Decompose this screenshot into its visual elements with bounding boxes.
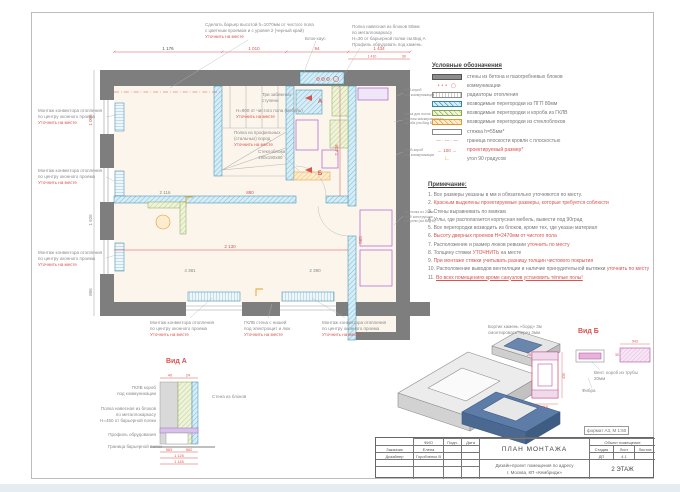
view-b-note-2: Вент. короб из трубы20мм: [594, 370, 638, 382]
annotation-shelf-profile: Полка из профильных(стальных) пород Уточ…: [234, 130, 281, 148]
tb-object-label: Объект помещение: [589, 438, 655, 445]
note-row: 10. Расположение выводов вентиляции и на…: [428, 265, 663, 273]
note-row: 5. Все перегородки возводить из блоков, …: [428, 224, 663, 232]
note-text: Все размеры указаны в мм и обязательно у…: [434, 192, 582, 198]
note-text: Все перегородки возводить из блоков, кро…: [434, 225, 598, 231]
legend-item: возводимые перегородки из стеклоблоков: [432, 119, 647, 126]
view-a-note-5: Стена из блоков: [212, 394, 246, 400]
note-number: 3: [428, 209, 431, 215]
tb-sheet-label: Лист: [613, 445, 634, 452]
view-a-note-2: Полка навесная из блоковпо металлокаркас…: [98, 406, 156, 424]
legend-item-label: радиаторы отопления: [467, 92, 518, 98]
legend-item-label: возводимые перегородки из ПГП 80мм: [467, 101, 557, 107]
tb-stage-value: ДП: [589, 452, 613, 459]
title-block: ФИО Подп. Дата Заказчик Елена Дизайнер Г…: [375, 437, 654, 478]
svg-text:1 010: 1 010: [248, 46, 260, 51]
annotation-shelf-top: Полка навесная из блоков 50мм по металло…: [352, 24, 426, 47]
note-text-red: уточнить по месту: [607, 266, 649, 272]
svg-text:2 116: 2 116: [160, 190, 171, 195]
drawing-sheet: А Б 1 176 1 010 94 1 434 1 410 30 1 006 …: [0, 0, 680, 492]
project-line-1: Дизайн-проект помещения по адресу: [495, 463, 573, 468]
section-marker-a: А: [318, 99, 323, 105]
note-row: 3. Стены выравнивать по маякам: [428, 208, 663, 216]
tb-col-fio: ФИО: [413, 438, 443, 445]
svg-text:1 176: 1 176: [162, 46, 174, 51]
annotation-glass-blocks: Стеклоблоки190х190х80: [258, 149, 285, 161]
view-a-detail: 563 562 1 125 1 145 40 24: [150, 374, 215, 465]
annotation-convector-1: Монтаж конвектора отопленияпо центру око…: [38, 108, 102, 126]
annotation-duct-1: ПГП-коробпод коммуникации: [404, 88, 434, 97]
note-text: Толщину стяжки: [434, 250, 473, 256]
note-text-red: Красным выделены проектируемые размеры, …: [434, 200, 609, 206]
annotation-convector-3: Монтаж конвектора отопленияпо центру око…: [38, 250, 102, 268]
note-number: 4: [428, 217, 431, 223]
note-number: 9: [428, 258, 431, 264]
tb-role-1: Заказчик: [376, 445, 413, 452]
note-text-post: на месте: [499, 250, 521, 256]
note-row: 6. Высоту дверных проемов Н=2470мм от чи…: [428, 232, 663, 240]
svg-text:25: 25: [527, 353, 531, 357]
section-marker-b: Б: [318, 171, 323, 177]
legend: Условные обозначения стены из бетона и п…: [432, 63, 647, 165]
tb-empty-1: [376, 459, 413, 466]
svg-text:563: 563: [166, 448, 172, 452]
note-row: 4. Углы, где располагается корпусная меб…: [428, 216, 663, 224]
view-b-note-1: Бортик камень «борд» 3мсмонтировать чере…: [488, 324, 542, 336]
legend-swatch-icon: ∘∘∘ ◯: [432, 83, 462, 89]
note-text-red: УТОЧНИТЬ: [473, 250, 500, 256]
legend-item-label: стены из бетона и пазогребневых блоков: [467, 74, 563, 80]
annotation-furniture-height: Н=900 от чистого пола (мебель) Уточнить …: [236, 108, 303, 120]
legend-swatch-icon: [432, 119, 462, 125]
project-line-2: г. Москва, КП «Кембридж»: [507, 470, 562, 475]
note-row: 7. Расположение и размер люков ревизии у…: [428, 241, 663, 249]
legend-item-label: граница плоскости кровли с плоскостью: [467, 138, 560, 144]
legend-item: возводимые перегородки из ПГП 80мм: [432, 101, 647, 108]
svg-text:430: 430: [562, 373, 566, 379]
legend-item: ∘∘∘ ◯ коммуникации: [432, 82, 647, 89]
svg-text:94: 94: [314, 46, 320, 51]
note-row: 2. Красным выделены проектируемые размер…: [428, 199, 663, 207]
legend-item: ← 100 → проектируемый размер*: [432, 147, 647, 154]
tb-role-2: Дизайнер: [376, 452, 413, 459]
note-number: 11: [428, 275, 433, 281]
legend-item: возводимые перегородки и короба из ГКЛВ: [432, 110, 647, 117]
note-number: 8: [428, 250, 431, 256]
note-text: Расположение и размер люков ревизии: [434, 242, 528, 248]
note-text-red: При монтаже стяжки учитывать разницу тол…: [434, 258, 594, 264]
tb-doc-title-cell: ПЛАН МОНТАЖА: [479, 438, 589, 459]
notes: Примечание: 1. Все размеры указаны в мм …: [428, 182, 663, 282]
svg-text:24: 24: [186, 374, 190, 378]
svg-text:2 130: 2 130: [224, 244, 236, 249]
legend-swatch-icon: [432, 101, 462, 107]
note-text-red: Во всех помещениях кроме санузлов устано…: [436, 275, 583, 281]
tb-col-sign: Подп.: [443, 438, 461, 445]
annotation-barrier: Сделать барьер высотой h=1070мм от чисто…: [205, 22, 314, 40]
legend-item: стяжка h=55мм*: [432, 128, 647, 135]
note-number: 2: [428, 200, 431, 206]
svg-text:543: 543: [632, 340, 638, 344]
annotation-convector-5: Монтаж конвектора отопленияпо центру око…: [322, 320, 386, 338]
svg-text:880: 880: [246, 190, 254, 195]
tb-empty-5: [376, 466, 413, 479]
note-number: 6: [428, 233, 431, 239]
legend-swatch-icon: ∟: [432, 156, 462, 162]
svg-text:1 410: 1 410: [368, 55, 377, 59]
tb-empty-3: [443, 459, 461, 466]
legend-item: радиаторы отопления: [432, 91, 647, 98]
annotation-convector-4: Монтаж конвектора отопленияпо центру око…: [150, 320, 214, 338]
tb-name-1: Елена: [413, 445, 443, 452]
svg-text:1 926: 1 926: [88, 214, 93, 226]
format-scale-label: формат А3, М 1:50: [584, 426, 629, 435]
legend-item-label: коммуникации: [467, 83, 501, 89]
tb-sheet-value: 4.1: [613, 452, 634, 459]
doc-title: ПЛАН МОНТАЖА: [502, 446, 567, 453]
note-text: Расположение выводов вентиляции и наличи…: [436, 266, 606, 272]
tb-date-2: [461, 452, 479, 459]
svg-text:1 145: 1 145: [174, 460, 184, 464]
svg-text:806: 806: [88, 288, 93, 296]
tb-empty-7: [443, 466, 461, 479]
svg-text:30: 30: [615, 353, 619, 357]
view-a-label: Вид А: [166, 358, 187, 365]
note-text: Стены выравнивать по маякам: [434, 209, 506, 215]
note-text: Углы, где располагается корпусная мебель…: [434, 217, 583, 223]
legend-item-label: возводимые перегородки из стеклоблоков: [467, 119, 565, 125]
tb-name-2: Горобченко В: [413, 452, 443, 459]
tb-blank: [376, 438, 413, 445]
svg-text:118: 118: [542, 405, 548, 409]
legend-swatch-icon: ← 100 →: [432, 147, 462, 153]
note-number: 10: [428, 266, 434, 272]
note-row: 9. При монтаже стяжки учитывать разницу …: [428, 257, 663, 265]
annotation-duct-2: ГКЛВ-коробпод коммуникации: [404, 148, 434, 157]
view-b-label: Вид Б: [578, 328, 599, 335]
note-row: 1. Все размеры указаны в мм и обязательн…: [428, 191, 663, 199]
svg-text:40: 40: [168, 374, 172, 378]
view-b-note-3: Фибра: [582, 388, 596, 394]
annotation-blockhaus: Блок-хаус: [305, 36, 326, 42]
note-row: 11. Во всех помещениях кроме санузлов ус…: [428, 274, 663, 282]
note-number: 5: [428, 225, 431, 231]
tb-empty-6: [413, 466, 443, 479]
notes-title: Примечание:: [428, 182, 663, 188]
svg-text:30: 30: [402, 55, 406, 59]
tb-sign-1: [443, 445, 461, 452]
legend-swatch-icon: [432, 74, 462, 80]
svg-text:565: 565: [358, 236, 363, 244]
svg-text:2 380: 2 380: [309, 268, 321, 273]
legend-item-label: возводимые перегородки и короба из ГКЛВ: [467, 110, 567, 116]
legend-item-label: проектируемый размер*: [467, 147, 523, 153]
tb-sheets-label: Листов: [634, 445, 655, 452]
legend-items: стены из бетона и пазогребневых блоков ∘…: [432, 73, 647, 163]
tb-sign-2: [443, 452, 461, 459]
svg-text:2 436: 2 436: [334, 144, 339, 156]
note-number: 7: [428, 242, 431, 248]
tb-empty-4: [461, 459, 479, 466]
legend-swatch-icon: [432, 129, 462, 135]
tb-stage-label: Стадия: [589, 445, 613, 452]
annotation-winders: Три забежныхступени: [262, 92, 291, 104]
svg-text:562: 562: [186, 448, 192, 452]
legend-swatch-icon: [432, 92, 462, 98]
view-a-note-4: Граница барьерной полки: [104, 444, 162, 450]
legend-swatch-icon: [432, 110, 462, 116]
legend-item: стены из бетона и пазогребневых блоков: [432, 73, 647, 80]
note-row: 8. Толщину стяжки УТОЧНИТЬ на месте: [428, 249, 663, 257]
legend-title: Условные обозначения: [432, 63, 647, 69]
tb-sheets-value: [634, 452, 655, 459]
svg-text:4 381: 4 381: [184, 268, 196, 273]
annotation-wall-niche: ГКЛВ стена с нишейпод электрощит и люк У…: [244, 320, 290, 338]
note-number: 1: [428, 192, 431, 198]
legend-item: ∟ угол 90 градусов: [432, 156, 647, 163]
tb-col-date: Дата: [461, 438, 479, 445]
note-text-red: уточнить по месту: [527, 242, 569, 248]
notes-items: 1. Все размеры указаны в мм и обязательн…: [428, 191, 663, 282]
tb-empty-8: [461, 466, 479, 479]
svg-text:1 125: 1 125: [174, 454, 184, 458]
view-a-note-1: ГКЛВ коробпод коммуникации: [110, 385, 156, 397]
tb-date-1: [461, 445, 479, 452]
legend-item: — · — · — граница плоскости кровли с пло…: [432, 137, 647, 144]
legend-item-label: угол 90 градусов: [467, 156, 506, 162]
annotation-convector-2: Монтаж конвектора отопленияпо центру око…: [38, 168, 102, 186]
note-text-red: Высоту дверных проемов Н=2470мм от чисто…: [434, 233, 557, 239]
view-a-note-3: Профиль обрудования: [98, 432, 156, 438]
tb-project-cell: Дизайн-проект помещения по адресу г. Мос…: [479, 459, 589, 479]
tb-empty-2: [413, 459, 443, 466]
tb-floor: 2 ЭТАЖ: [589, 459, 655, 479]
legend-item-label: стяжка h=55мм*: [467, 129, 504, 135]
legend-swatch-icon: — · — · —: [432, 138, 462, 144]
